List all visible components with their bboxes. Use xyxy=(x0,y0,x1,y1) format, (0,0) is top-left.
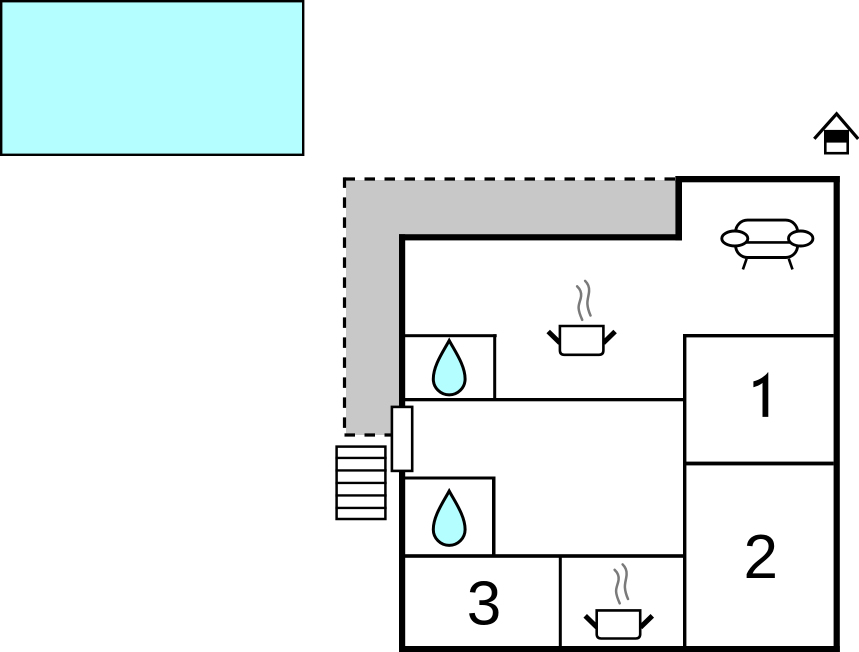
svg-text:2: 2 xyxy=(743,523,777,592)
svg-text:3: 3 xyxy=(467,570,501,639)
